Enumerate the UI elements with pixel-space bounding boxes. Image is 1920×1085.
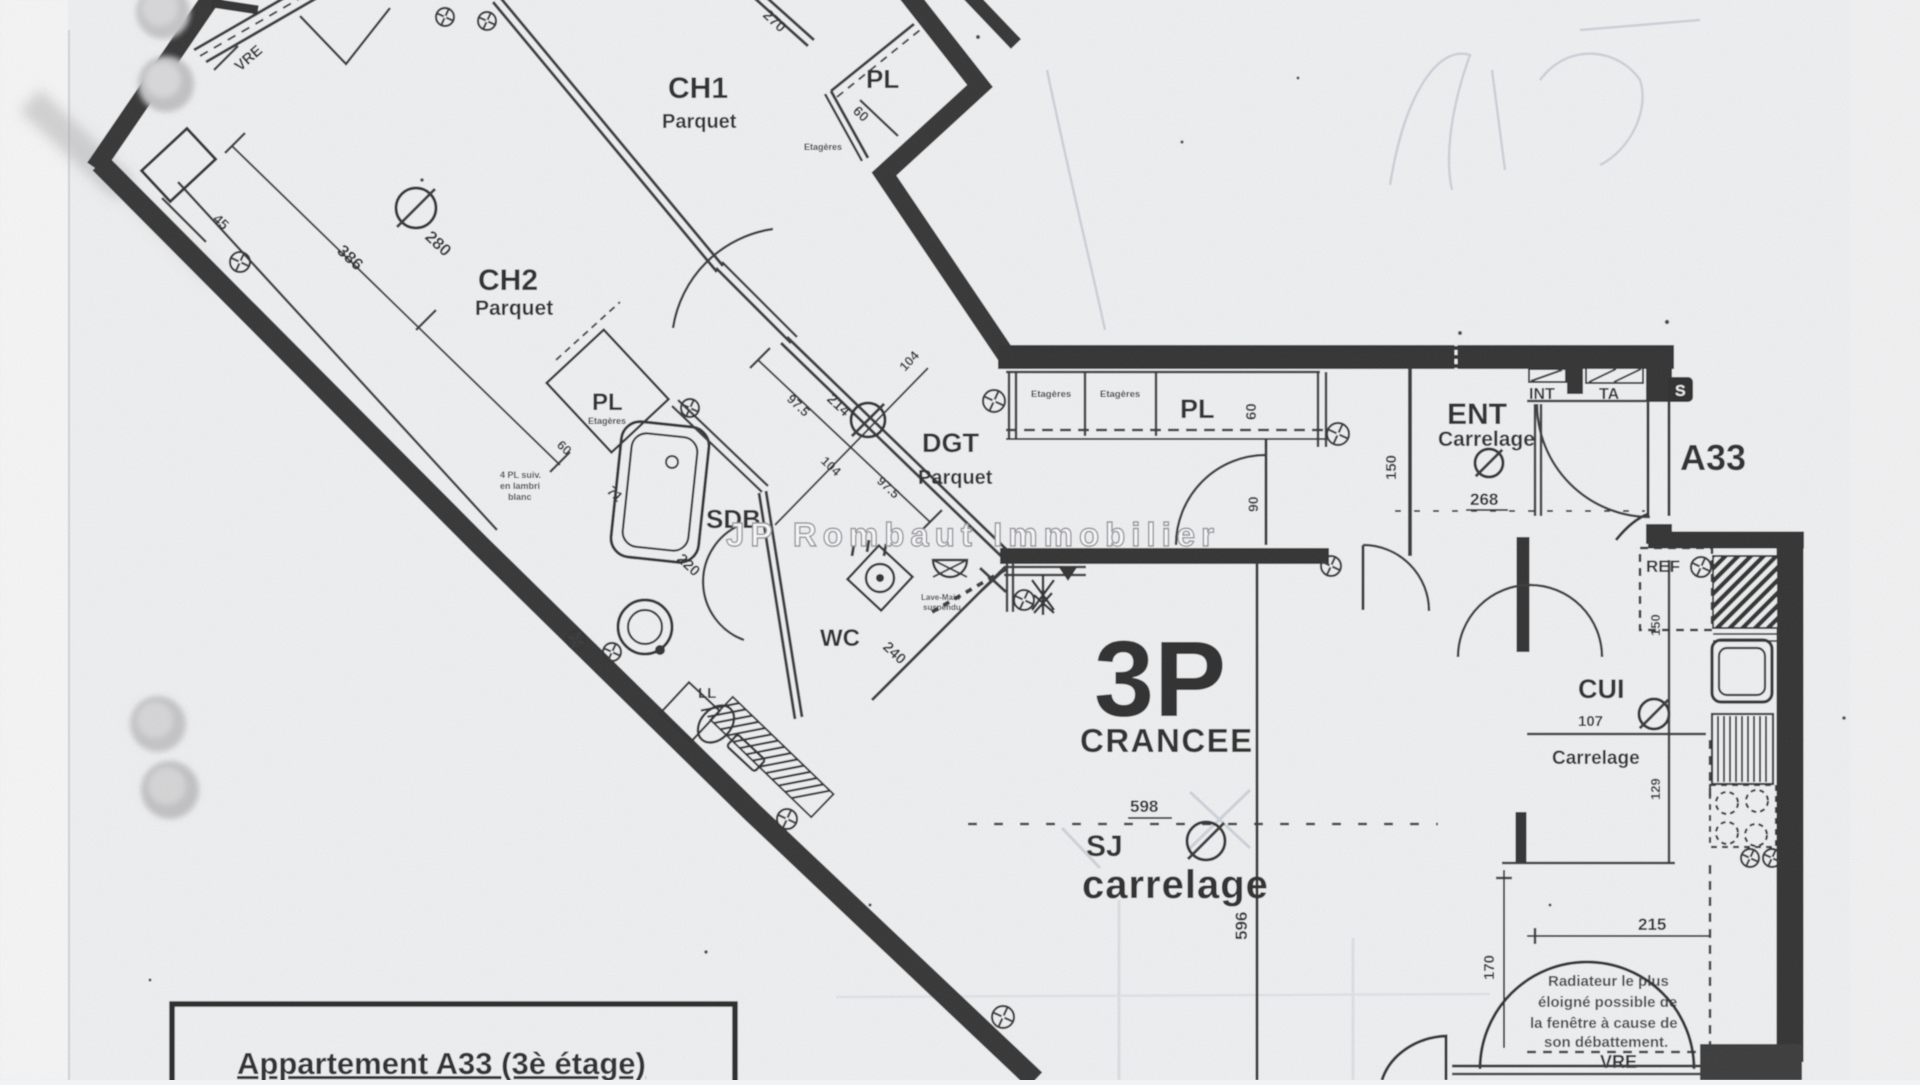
svg-text:Parquet: Parquet bbox=[662, 111, 737, 133]
svg-text:la fenêtre à cause de: la fenêtre à cause de bbox=[1530, 1015, 1678, 1032]
svg-text:S: S bbox=[1675, 383, 1686, 400]
svg-text:en lambri: en lambri bbox=[500, 481, 540, 491]
svg-text:596: 596 bbox=[1232, 912, 1251, 940]
svg-text:Etagères: Etagères bbox=[1100, 389, 1140, 400]
svg-text:REF: REF bbox=[1646, 557, 1680, 576]
svg-text:598: 598 bbox=[1130, 797, 1158, 816]
svg-text:4 PL suiv.: 4 PL suiv. bbox=[500, 470, 541, 480]
svg-text:Etagères: Etagères bbox=[588, 416, 626, 426]
svg-text:Appartement A33 (3è étage): Appartement A33 (3è étage) bbox=[237, 1046, 646, 1080]
svg-text:CRANCEE: CRANCEE bbox=[1080, 722, 1254, 759]
svg-text:ENT: ENT bbox=[1447, 398, 1507, 431]
svg-text:90: 90 bbox=[1245, 496, 1261, 512]
svg-text:60: 60 bbox=[1243, 403, 1260, 420]
svg-text:150: 150 bbox=[1648, 614, 1663, 636]
svg-text:CUI: CUI bbox=[1578, 674, 1625, 704]
svg-text:3P: 3P bbox=[1094, 618, 1226, 739]
svg-text:INT: INT bbox=[1529, 386, 1555, 403]
svg-text:Etagères: Etagères bbox=[1031, 389, 1071, 400]
svg-text:170: 170 bbox=[1481, 955, 1498, 980]
svg-text:carrelage: carrelage bbox=[1082, 863, 1269, 907]
svg-text:215: 215 bbox=[1638, 915, 1666, 934]
svg-text:Carrelage: Carrelage bbox=[1438, 428, 1535, 451]
svg-text:DGT: DGT bbox=[922, 428, 980, 458]
svg-text:Parquet: Parquet bbox=[475, 297, 553, 320]
svg-text:Parquet: Parquet bbox=[918, 467, 993, 489]
svg-text:107: 107 bbox=[1578, 713, 1603, 730]
svg-text:CH2: CH2 bbox=[478, 264, 538, 297]
svg-text:TA: TA bbox=[1599, 386, 1620, 403]
svg-text:A33: A33 bbox=[1680, 437, 1746, 478]
svg-text:son débattement.: son débattement. bbox=[1544, 1034, 1668, 1051]
svg-text:éloigné possible de: éloigné possible de bbox=[1538, 994, 1677, 1011]
svg-text:LL: LL bbox=[698, 685, 716, 702]
svg-text:VRE: VRE bbox=[1600, 1052, 1637, 1072]
svg-text:blanc: blanc bbox=[508, 492, 532, 502]
svg-text:Carrelage: Carrelage bbox=[1552, 748, 1640, 769]
svg-text:PL: PL bbox=[866, 64, 899, 94]
svg-text:Etagères: Etagères bbox=[804, 142, 842, 152]
svg-text:suspendu: suspendu bbox=[923, 603, 961, 612]
svg-text:CH1: CH1 bbox=[668, 72, 728, 105]
svg-text:129: 129 bbox=[1648, 778, 1663, 800]
svg-text:WC: WC bbox=[820, 625, 860, 652]
svg-text:PL: PL bbox=[1180, 394, 1215, 424]
svg-text:JP Rombaut Immobilier: JP Rombaut Immobilier bbox=[726, 516, 1220, 553]
svg-text:268: 268 bbox=[1470, 490, 1498, 509]
svg-text:150: 150 bbox=[1383, 455, 1400, 480]
svg-text:SJ: SJ bbox=[1086, 830, 1123, 863]
svg-text:PL: PL bbox=[592, 389, 623, 416]
